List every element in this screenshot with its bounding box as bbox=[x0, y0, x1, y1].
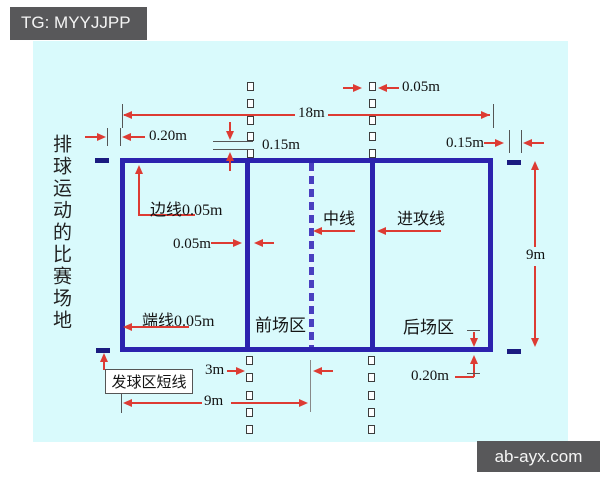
arrowhead bbox=[97, 133, 106, 141]
arrowhead bbox=[226, 152, 234, 161]
dim-line bbox=[263, 242, 274, 244]
dim-line bbox=[534, 170, 536, 247]
watermark-badge: ab-ayx.com bbox=[477, 441, 600, 472]
tick-mark bbox=[213, 149, 253, 150]
center-line-extension-tick bbox=[310, 360, 311, 412]
arrowhead bbox=[353, 84, 362, 92]
back-zone-label: 后场区 bbox=[403, 313, 454, 338]
attack-ext-top-right bbox=[369, 82, 376, 158]
dim-015-mark: 0.15m bbox=[446, 135, 484, 152]
dim-005-linewidth: 0.05m bbox=[173, 236, 211, 253]
dash-segment bbox=[247, 82, 254, 91]
arrowhead bbox=[299, 399, 308, 407]
dash-segment bbox=[368, 373, 375, 382]
dim-9m-right: 9m bbox=[523, 247, 548, 264]
dash-segment bbox=[246, 356, 253, 365]
dash-segment bbox=[369, 132, 376, 141]
dim-line bbox=[322, 230, 355, 232]
dim-line bbox=[132, 326, 189, 328]
dash-segment bbox=[246, 408, 253, 417]
service-shortline-label: 发球区短线 bbox=[105, 369, 193, 394]
dim-line bbox=[131, 136, 145, 138]
dash-segment bbox=[247, 149, 254, 158]
tick-mark bbox=[521, 130, 522, 153]
tick-mark bbox=[107, 128, 108, 146]
arrowhead bbox=[531, 338, 539, 347]
dim-line bbox=[534, 266, 536, 338]
tick-mark bbox=[493, 104, 494, 128]
service-mark-top-left bbox=[95, 158, 109, 163]
attack-ext-top-left bbox=[247, 82, 254, 158]
arrowhead bbox=[123, 323, 132, 331]
arrowhead bbox=[100, 353, 108, 362]
arrowhead bbox=[313, 367, 322, 375]
side-title: 排球运动的比赛场地 bbox=[47, 134, 74, 352]
dim-line bbox=[138, 174, 140, 216]
tick-mark bbox=[213, 141, 253, 142]
arrowhead bbox=[123, 111, 132, 119]
arrowhead bbox=[470, 338, 478, 347]
dim-005-dashwidth: 0.05m bbox=[402, 79, 440, 96]
tick-mark bbox=[121, 393, 122, 413]
attackline-label: 进攻线 bbox=[397, 205, 445, 229]
screenshot-stage: TG: MYYJJPP 排球运动的比赛场地 18m 0.20m 0.15m bbox=[0, 0, 600, 480]
dash-segment bbox=[369, 99, 376, 108]
dim-18m: 18m bbox=[295, 105, 328, 122]
dim-line bbox=[386, 230, 441, 232]
dim-9m-half: 9m bbox=[204, 393, 223, 410]
arrowhead bbox=[470, 355, 478, 364]
dash-segment bbox=[247, 116, 254, 125]
dash-segment bbox=[247, 132, 254, 141]
dim-line bbox=[532, 142, 544, 144]
dash-segment bbox=[369, 149, 376, 158]
service-mark-top-right bbox=[507, 160, 521, 165]
dim-line bbox=[85, 136, 97, 138]
arrowhead bbox=[531, 161, 539, 170]
dim-line bbox=[322, 370, 333, 372]
dash-segment bbox=[246, 391, 253, 400]
front-zone-label: 前场区 bbox=[255, 311, 306, 336]
dash-segment bbox=[368, 356, 375, 365]
centerline-label: 中线 bbox=[323, 205, 355, 229]
dim-020-bottom: 0.20m bbox=[411, 368, 449, 385]
arrowhead bbox=[122, 133, 131, 141]
attack-line-right bbox=[370, 163, 375, 347]
tick-mark bbox=[120, 128, 121, 146]
arrowhead bbox=[313, 227, 322, 235]
arrowhead bbox=[233, 239, 242, 247]
tick-mark bbox=[467, 373, 480, 374]
dash-segment bbox=[369, 116, 376, 125]
attack-line-left bbox=[245, 163, 250, 347]
arrowhead bbox=[254, 239, 263, 247]
arrowhead bbox=[495, 139, 504, 147]
dim-3m: 3m bbox=[205, 362, 224, 379]
dash-segment bbox=[368, 408, 375, 417]
dash-segment bbox=[246, 373, 253, 382]
dash-segment bbox=[368, 391, 375, 400]
attack-ext-bottom-right bbox=[368, 356, 375, 434]
service-mark-bottom-right bbox=[507, 349, 521, 354]
arrowhead bbox=[226, 131, 234, 140]
dim-line bbox=[231, 402, 301, 404]
dim-line bbox=[132, 402, 202, 404]
tick-mark bbox=[467, 330, 480, 331]
dim-line bbox=[387, 87, 399, 89]
dim-015-dash: 0.15m bbox=[262, 137, 300, 154]
sideline-label: 边线0.05m bbox=[150, 196, 222, 220]
arrowhead bbox=[377, 227, 386, 235]
attack-ext-bottom-left bbox=[246, 356, 253, 434]
dim-line bbox=[211, 242, 234, 244]
tick-mark bbox=[509, 130, 510, 153]
dash-segment bbox=[246, 425, 253, 434]
arrowhead bbox=[236, 367, 245, 375]
dash-segment bbox=[369, 82, 376, 91]
arrowhead bbox=[378, 84, 387, 92]
tag-badge: TG: MYYJJPP bbox=[10, 7, 147, 40]
arrowhead bbox=[123, 399, 132, 407]
arrowhead bbox=[481, 111, 490, 119]
dash-segment bbox=[247, 99, 254, 108]
dim-line bbox=[455, 376, 474, 378]
dim-020-topleft: 0.20m bbox=[149, 128, 187, 145]
arrowhead bbox=[135, 165, 143, 174]
dim-line bbox=[229, 161, 231, 171]
arrowhead bbox=[523, 139, 532, 147]
dash-segment bbox=[368, 425, 375, 434]
center-line bbox=[309, 163, 314, 347]
